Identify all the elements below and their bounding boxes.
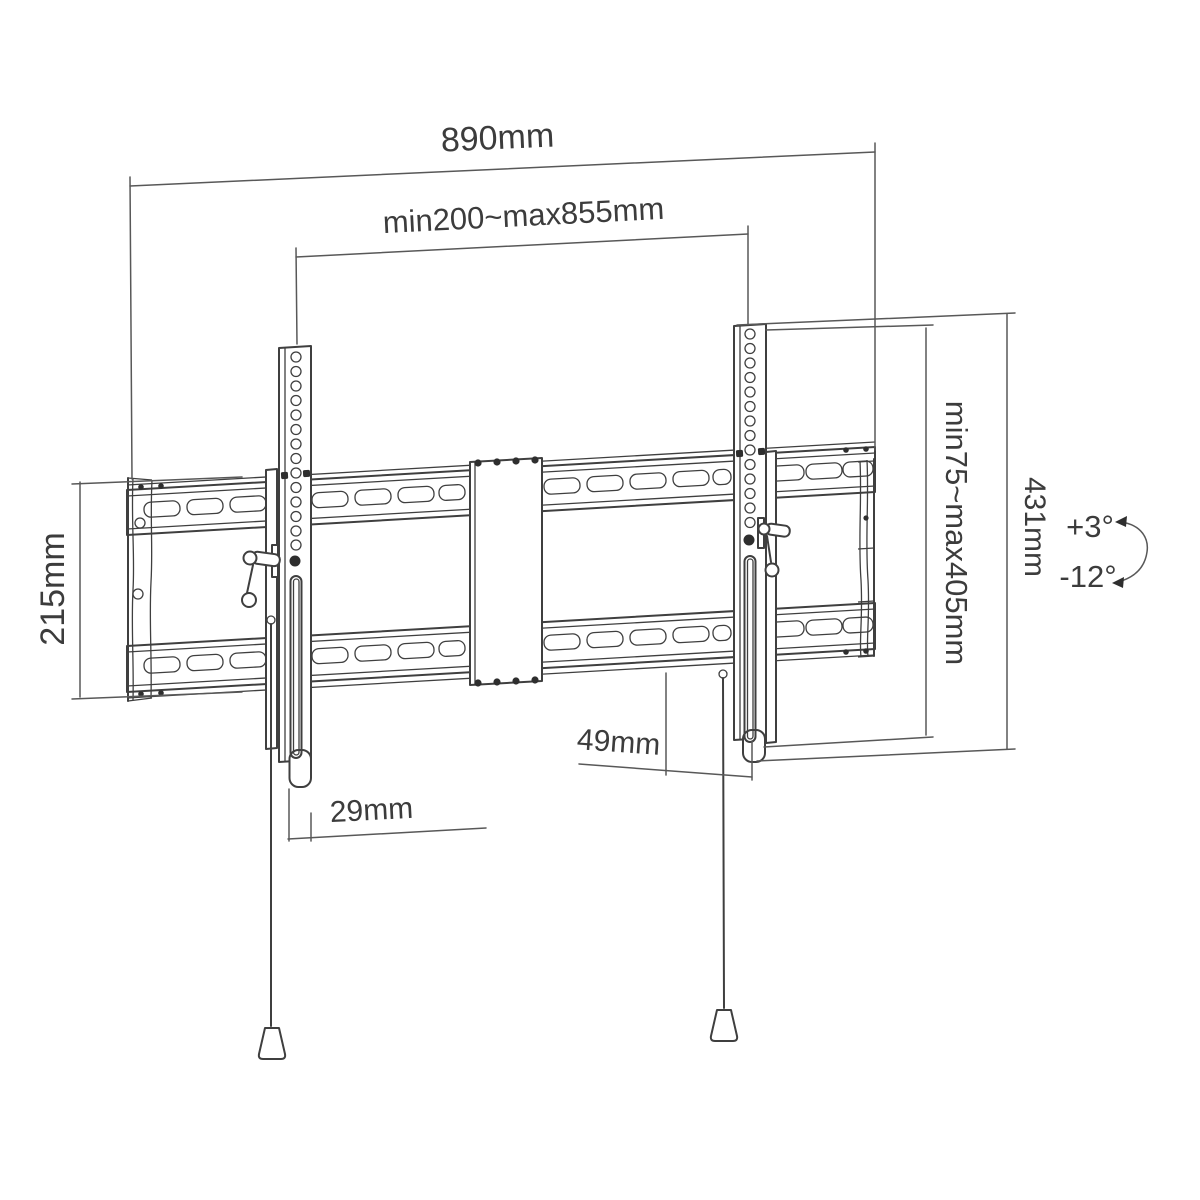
dim-label-plate-height: 215mm xyxy=(34,532,72,645)
dim-depth-29: 29mm xyxy=(288,789,486,841)
tilt-annotation: +3° -12° xyxy=(1059,509,1147,594)
dim-vesa-range: min75~max405mm xyxy=(764,325,974,747)
dim-label-depth-49: 49mm xyxy=(576,723,661,762)
tilt-up-label: +3° xyxy=(1066,509,1114,544)
dim-label-depth-29: 29mm xyxy=(329,792,414,829)
dim-label-overall-width: 890mm xyxy=(440,116,555,159)
tv-mount-dimension-drawing: 890mm min200~max855mm 215mm min75~max405… xyxy=(0,0,1200,1200)
right-pull-handle xyxy=(711,1010,737,1041)
drawing-canvas: 890mm min200~max855mm 215mm min75~max405… xyxy=(0,0,1200,1200)
dim-label-total-height: 431mm xyxy=(1018,477,1051,577)
tilt-arc-arrow xyxy=(1118,522,1147,582)
dim-rail-span: min200~max855mm xyxy=(296,191,748,344)
tilt-down-label: -12° xyxy=(1059,559,1116,594)
dim-label-rail-span: min200~max855mm xyxy=(382,191,665,240)
left-pull-handle xyxy=(259,1028,285,1059)
dim-depth-49: 49mm xyxy=(576,673,752,780)
right-tv-arm xyxy=(734,324,776,762)
vesa-spacer-plate xyxy=(470,456,542,686)
dim-label-vesa-range: min75~max405mm xyxy=(939,401,974,665)
